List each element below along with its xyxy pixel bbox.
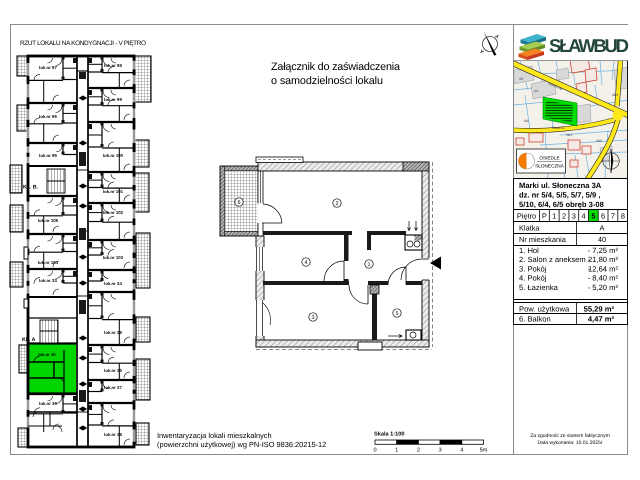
svg-text:lok.nr 36: lok.nr 36 bbox=[104, 368, 122, 373]
svg-text:1: 1 bbox=[367, 262, 370, 268]
svg-text:1: 1 bbox=[552, 212, 556, 221]
svg-text:29/2: 29/2 bbox=[596, 139, 602, 143]
svg-text:lok.nr 105: lok.nr 105 bbox=[38, 218, 59, 223]
svg-text:lok.nr 39: lok.nr 39 bbox=[39, 401, 57, 406]
svg-text:2: 2 bbox=[335, 201, 338, 207]
svg-text:5/10, 6/4, 6/5 obręb 3-08: 5/10, 6/4, 6/5 obręb 3-08 bbox=[519, 200, 604, 209]
svg-text:o samodzielności lokalu: o samodzielności lokalu bbox=[271, 75, 383, 87]
svg-text:4. Pokój: 4. Pokój bbox=[519, 274, 547, 283]
svg-text:lok.nr 104: lok.nr 104 bbox=[38, 260, 59, 265]
svg-text:KL. A: KL. A bbox=[22, 337, 36, 343]
svg-text:Klatka: Klatka bbox=[519, 224, 540, 233]
svg-text:7: 7 bbox=[611, 212, 615, 221]
svg-text:Piętro: Piętro bbox=[517, 212, 536, 221]
svg-text:OSIEDLE: OSIEDLE bbox=[539, 156, 559, 161]
svg-text:lok.nr 102: lok.nr 102 bbox=[103, 210, 124, 215]
svg-text:lok.nr 38: lok.nr 38 bbox=[104, 432, 122, 437]
svg-text:26/1: 26/1 bbox=[566, 133, 572, 137]
svg-text:Załącznik do zaświadczenia: Załącznik do zaświadczenia bbox=[271, 61, 400, 73]
svg-text:6: 6 bbox=[237, 200, 240, 206]
svg-text:lok.nr 100: lok.nr 100 bbox=[103, 153, 124, 158]
svg-text:5,20 m²: 5,20 m² bbox=[592, 283, 618, 292]
svg-text:55,29 m²: 55,29 m² bbox=[584, 305, 615, 314]
svg-text:3. Pokój: 3. Pokój bbox=[519, 264, 547, 273]
svg-text:1. Hol: 1. Hol bbox=[519, 246, 539, 255]
svg-text:2: 2 bbox=[417, 448, 420, 454]
svg-text:Skala 1:100: Skala 1:100 bbox=[374, 431, 404, 438]
svg-text:1: 1 bbox=[395, 448, 398, 454]
svg-text:lok.nr 101: lok.nr 101 bbox=[103, 189, 124, 194]
svg-text:46/2: 46/2 bbox=[612, 93, 618, 97]
svg-text:A: A bbox=[600, 224, 605, 233]
svg-text:6. Balkon: 6. Balkon bbox=[519, 315, 551, 324]
svg-text:4: 4 bbox=[304, 260, 307, 266]
svg-text:5. Łazienka: 5. Łazienka bbox=[519, 283, 559, 292]
svg-text:4/5: 4/5 bbox=[519, 77, 524, 81]
svg-text:0: 0 bbox=[373, 448, 376, 454]
svg-text:lok.nr 103: lok.nr 103 bbox=[103, 255, 124, 260]
svg-text:lok.nr 98: lok.nr 98 bbox=[104, 63, 122, 68]
svg-text:lok.nr 95: lok.nr 95 bbox=[39, 153, 57, 158]
svg-text:P: P bbox=[542, 212, 547, 221]
svg-text:lok.nr 96: lok.nr 96 bbox=[39, 114, 57, 119]
svg-text:Wspólna: Wspólna bbox=[552, 126, 565, 130]
svg-text:6: 6 bbox=[601, 212, 605, 221]
svg-text:(powierzchni użytkowej) wg PN-: (powierzchni użytkowej) wg PN-ISO 9836:2… bbox=[157, 440, 326, 449]
svg-text:Pow. użytkowa: Pow. użytkowa bbox=[519, 305, 570, 314]
svg-text:4: 4 bbox=[582, 212, 586, 221]
svg-text:7,25 m²: 7,25 m² bbox=[592, 246, 618, 255]
svg-text:Inwentaryzacja lokali mieszkal: Inwentaryzacja lokali mieszkalnych bbox=[157, 431, 272, 440]
svg-text:5: 5 bbox=[395, 311, 398, 317]
svg-text:SŁONECZNA: SŁONECZNA bbox=[535, 164, 565, 169]
svg-text:2: 2 bbox=[562, 212, 566, 221]
svg-text:5: 5 bbox=[591, 212, 595, 221]
svg-text:RZUT LOKALU NA KONDYGNACJI - V: RZUT LOKALU NA KONDYGNACJI - V PIĘTRO bbox=[20, 40, 146, 47]
svg-text:dz. nr 5/4, 5/5, 5/7, 5/9 ,: dz. nr 5/4, 5/5, 5/7, 5/9 , bbox=[519, 191, 600, 200]
svg-text:8,40 m²: 8,40 m² bbox=[592, 274, 618, 283]
svg-text:2. Salon z aneksem: 2. Salon z aneksem bbox=[519, 255, 586, 264]
svg-text:lok.nr 97: lok.nr 97 bbox=[39, 65, 57, 70]
svg-text:lok.nr 40: lok.nr 40 bbox=[38, 352, 56, 357]
svg-text:lok.nr 99: lok.nr 99 bbox=[104, 97, 122, 102]
svg-text:lok.nr 34: lok.nr 34 bbox=[104, 281, 122, 286]
svg-text:Data wykonania: 10.01.2025r: Data wykonania: 10.01.2025r bbox=[537, 440, 602, 446]
svg-text:12,64 m²: 12,64 m² bbox=[588, 264, 618, 273]
svg-text:21,80 m²: 21,80 m² bbox=[588, 255, 618, 264]
svg-text:4/1: 4/1 bbox=[534, 89, 539, 93]
svg-text:5m: 5m bbox=[480, 448, 488, 454]
svg-text:lok.nr 33: lok.nr 33 bbox=[39, 278, 57, 283]
svg-text:4,47 m²: 4,47 m² bbox=[588, 315, 615, 324]
svg-text:40: 40 bbox=[598, 235, 606, 244]
svg-text:KL. B.: KL. B. bbox=[23, 185, 39, 191]
svg-text:lok.nr 35: lok.nr 35 bbox=[104, 330, 122, 335]
svg-text:Marki ul. Słoneczna 3A: Marki ul. Słoneczna 3A bbox=[519, 181, 602, 190]
svg-text:8: 8 bbox=[621, 212, 625, 221]
svg-text:4: 4 bbox=[460, 448, 463, 454]
svg-text:lok.nr 37: lok.nr 37 bbox=[104, 385, 122, 390]
svg-text:3: 3 bbox=[311, 315, 314, 321]
svg-text:3: 3 bbox=[572, 212, 576, 221]
svg-text:SŁAWBUD: SŁAWBUD bbox=[549, 35, 629, 56]
svg-text:Nr mieszkania: Nr mieszkania bbox=[519, 235, 567, 244]
svg-text:Za zgodność ze stanem faktyczn: Za zgodność ze stanem faktycznym bbox=[530, 433, 609, 439]
svg-text:3: 3 bbox=[439, 448, 442, 454]
svg-text:6/9: 6/9 bbox=[524, 119, 529, 123]
